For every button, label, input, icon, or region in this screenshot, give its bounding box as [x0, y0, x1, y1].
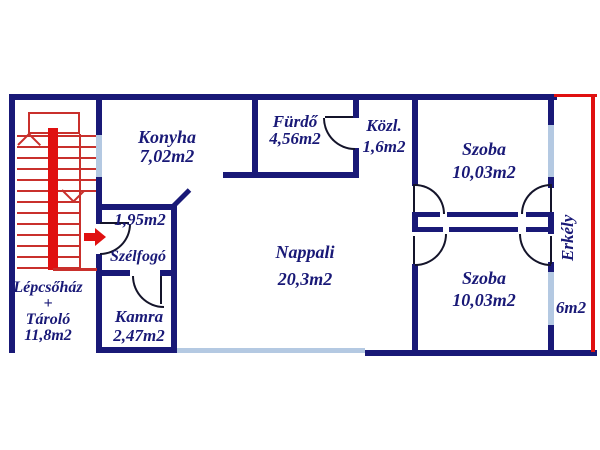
room-area: 7,02m2: [107, 147, 227, 166]
room-area: 10,03m2: [424, 289, 544, 311]
door-arc-kamra: [132, 276, 164, 308]
wall-szoba-divider-top-2: [447, 212, 518, 217]
wall-szoba-left-upper: [412, 94, 418, 186]
wall-stairwell-kitchen-upper: [96, 94, 102, 135]
floor-plan: Konyha 7,02m2 Fürdő 4,56m2 Közl. 1,6m2 S…: [0, 0, 600, 450]
entry-arrow-tail: [84, 233, 95, 241]
room-name-line1: Lépcsőház: [6, 280, 90, 296]
room-label-nappali: Nappali 20,3m2: [243, 239, 367, 293]
room-name-line2: Tároló: [6, 312, 90, 328]
room-label-kozl: Közl. 1,6m2: [356, 115, 412, 157]
room-label-kamra: Kamra 2,47m2: [98, 307, 180, 345]
room-area-szelfogo: 1,95m2: [102, 210, 178, 230]
door-arc-balcony-also: [519, 234, 551, 266]
room-name-erkely: Erkély: [558, 200, 584, 276]
wall-szoba-left-lower: [412, 264, 418, 353]
room-area: 1,6m2: [356, 136, 412, 157]
room-area: 11,8m2: [6, 328, 90, 344]
wall-szelfogo-kamra-left: [96, 270, 130, 276]
door-arc-szoba-also: [415, 234, 447, 266]
room-name-szelfogo: Szélfogó: [98, 248, 178, 266]
window-stairwell-kitchen: [96, 135, 102, 177]
room-area: 10,03m2: [424, 161, 544, 184]
door-arc-szoba-felso: [415, 184, 445, 214]
room-name: Szoba: [424, 138, 544, 161]
wall-top: [9, 94, 557, 100]
room-label-szoba-also: Szoba 10,03m2: [424, 267, 544, 311]
room-label-szoba-felso: Szoba 10,03m2: [424, 138, 544, 184]
room-area: 4,56m2: [245, 130, 345, 147]
room-label-konyha: Konyha 7,02m2: [107, 128, 227, 166]
stairs-edge-line: [79, 134, 81, 268]
wall-szoba-divider-bottom-2: [449, 227, 518, 232]
room-area-erkely: 6m2: [548, 298, 594, 318]
plus-sign: +: [6, 296, 90, 312]
room-name: Szoba: [424, 267, 544, 289]
window-szoba-felso: [548, 125, 554, 177]
wall-bottom: [365, 350, 597, 356]
wall-furdo-bottom: [223, 172, 359, 178]
room-name: Nappali: [243, 239, 367, 266]
open-door-leaf-szelfogo-nappali: [171, 188, 191, 208]
stairs-center-rail: [48, 128, 58, 270]
wall-szoba-divider-bottom-1: [412, 227, 443, 232]
room-area: 2,47m2: [98, 326, 180, 345]
room-name: Fürdő: [245, 113, 345, 130]
room-label-furdo: Fürdő 4,56m2: [245, 113, 345, 147]
room-name: Kamra: [98, 307, 180, 326]
door-arc-balcony-felso: [521, 184, 551, 214]
stairs-bottom-connector: [53, 268, 97, 271]
room-name: Közl.: [356, 115, 412, 136]
wall-kamra-bottom: [96, 347, 177, 353]
room-name: Konyha: [107, 128, 227, 147]
window-nappali: [177, 348, 365, 353]
room-area: 20,3m2: [243, 266, 367, 293]
wall-balcony-d: [548, 325, 554, 353]
wall-balcony-a: [548, 94, 554, 125]
room-label-lepcsohaz-tarolo: Lépcsőház + Tároló 11,8m2: [6, 280, 90, 344]
wall-balcony-cap: [548, 212, 554, 234]
